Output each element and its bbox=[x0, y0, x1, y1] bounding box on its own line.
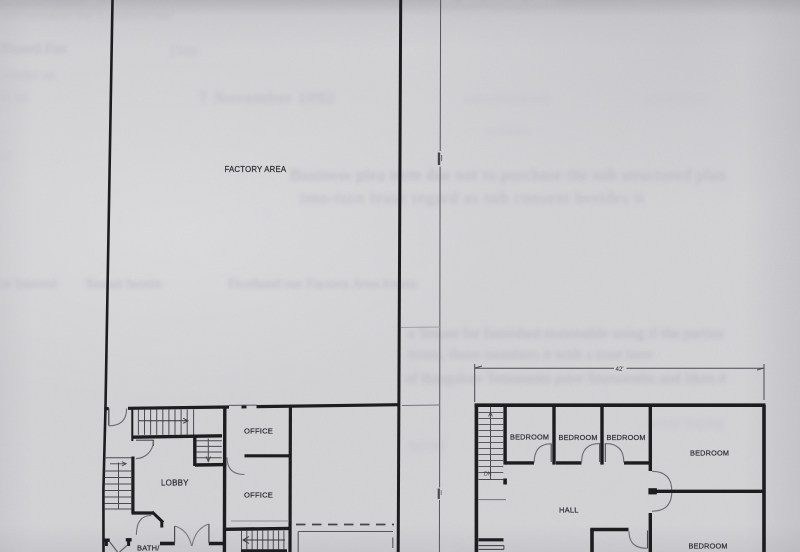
svg-text:LOBBY: LOBBY bbox=[161, 479, 189, 488]
svg-text:42': 42' bbox=[616, 366, 624, 373]
svg-text:FACTORY AREA: FACTORY AREA bbox=[225, 165, 287, 174]
svg-text:BEDROOM: BEDROOM bbox=[690, 449, 729, 458]
svg-text:OFFICE: OFFICE bbox=[244, 427, 273, 436]
svg-text:BEDROOM: BEDROOM bbox=[559, 433, 598, 442]
svg-text:BEDROOM: BEDROOM bbox=[607, 433, 646, 442]
svg-text:BEDROOM: BEDROOM bbox=[689, 542, 728, 551]
svg-text:DN: DN bbox=[484, 472, 492, 478]
svg-text:BATH/: BATH/ bbox=[137, 544, 160, 552]
svg-text:HALL: HALL bbox=[559, 506, 579, 515]
svg-text:BEDROOM: BEDROOM bbox=[510, 433, 549, 442]
svg-text:OFFICE: OFFICE bbox=[244, 491, 273, 500]
